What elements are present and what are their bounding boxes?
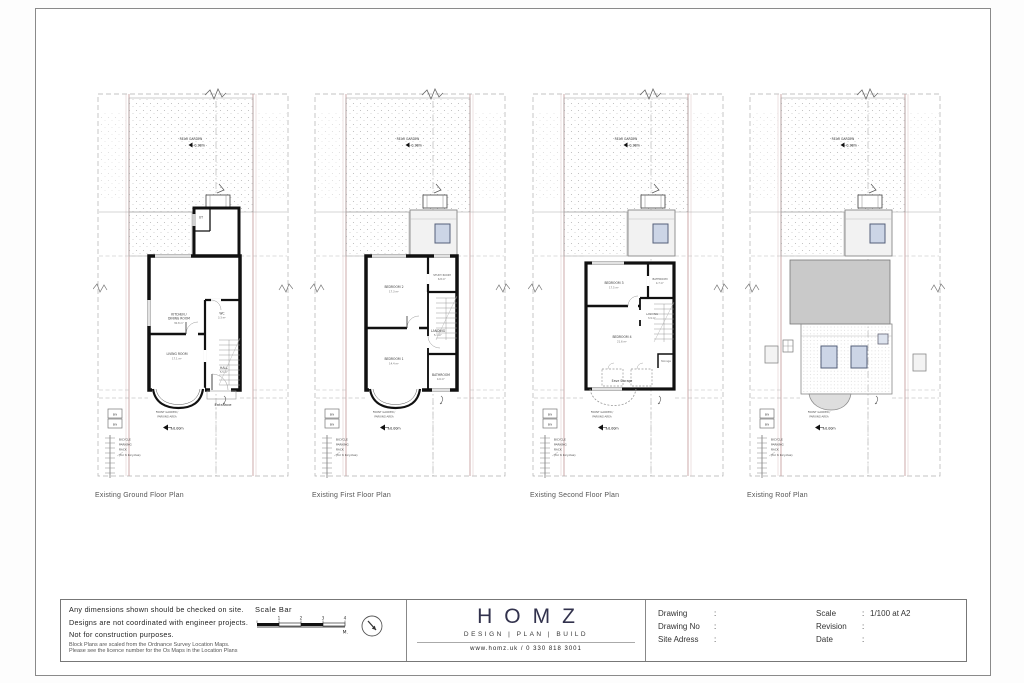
plan-strip-roof: Existing Roof Plan [745,88,945,502]
field-row-date: Date : [816,633,910,646]
room-label-living: LIVING ROOM [166,352,187,356]
field-row-drawing: Drawing : [658,607,722,620]
plan-strip-second-floor: BEDROOM 3 17.5 m² BATHROOM 4.7 m² LANDIN… [528,88,728,502]
field-row-site-address: Site Adress : [658,633,722,646]
svg-text:3: 3 [322,616,325,621]
room-label-bathroom: BATHROOM [652,277,667,281]
scale-bar-section: Scale Bar 1 2 3 4 M. [253,605,363,640]
logo: HOMZ [407,605,645,629]
plan-title-first: Existing First Floor Plan [312,492,510,499]
room-label-wc: WC [219,312,224,316]
neighbor-skylight [765,346,778,363]
svg-text:17.3 m²: 17.3 m² [389,290,399,294]
chimney [206,195,230,208]
room-label-bedroom4: BEDROOM 4 [612,335,631,339]
plan-title-ground: Existing Ground Floor Plan [95,492,293,499]
entrance-label: Entrance [214,402,232,407]
second-floor-plan-drawing: BEDROOM 3 17.5 m² BATHROOM 4.7 m² LANDIN… [528,88,728,488]
room-label-bedroom3: BEDROOM 3 [604,281,623,285]
room-label-landing: LANDING [646,312,658,316]
plan-title-roof: Existing Roof Plan [747,492,945,499]
logo-section: HOMZ DESIGN | PLAN | BUILD www.homz.uk /… [406,600,646,661]
plan-title-second: Existing Second Floor Plan [530,492,728,499]
drawing-info-section: Drawing : Drawing No : Site Adress : Sca… [646,607,960,657]
room-label-storage: Storage [661,359,671,363]
bay-roof-outline [590,389,636,406]
svg-text:4: 4 [344,616,347,621]
field-row-revision: Revision : [816,620,910,633]
note-line: Not for construction purposes. [69,629,248,642]
svg-text:21.6 m²: 21.6 m² [617,340,627,344]
bay-roof [809,394,851,410]
svg-text:5.1 m²: 5.1 m² [434,333,442,337]
north-arrow-icon [359,613,385,639]
svg-text:1: 1 [278,616,281,621]
field-row-drawing-no: Drawing No : [658,620,722,633]
svg-text:3.3 m²: 3.3 m² [218,316,226,320]
fine-print-line: Please see the licence number for the Os… [69,648,248,655]
front-step [207,391,236,399]
room-label-ut: UT [199,216,203,220]
room-label-bedroom2: BEDROOM 2 [384,285,403,289]
scale-bar-label: Scale Bar [255,605,363,614]
room-label-landing: LANDING [431,329,446,333]
roof-surfaces [765,260,926,410]
note-line: Designs are not coordinated with enginee… [69,617,248,630]
svg-text:30.8 m²: 30.8 m² [174,321,184,325]
skylight [821,346,837,368]
svg-text:5.5 m²: 5.5 m² [220,370,228,374]
svg-text:M.: M. [343,630,348,636]
room-label-eave-storage: Eave Storage [612,379,633,383]
svg-text:4.6 m²: 4.6 m² [437,377,445,381]
notes-section: Any dimensions shown should be checked o… [69,604,248,655]
field-row-scale: Scale : 1/100 at A2 [816,607,910,620]
svg-text:14.4 m²: 14.4 m² [389,362,399,366]
svg-text:DINING ROOM: DINING ROOM [168,317,190,321]
scale-bar: 1 2 3 4 M. [253,615,353,635]
first-floor-plan-drawing: BEDROOM 2 17.3 m² STUDY ROOM 6.8 m² LAND… [310,88,510,488]
note-line: Any dimensions shown should be checked o… [69,604,248,617]
room-label-bedroom1: BEDROOM 1 [384,357,403,361]
neighbor-skylight [913,354,926,371]
svg-text:3.9 m²: 3.9 m² [648,316,656,320]
plan-strip-first-floor: BEDROOM 2 17.3 m² STUDY ROOM 6.8 m² LAND… [310,88,510,502]
skylight [851,346,867,368]
svg-text:17.5 m²: 17.5 m² [609,286,619,290]
drawing-sheet-page: { "site": { "rear_garden": "REAR GARDEN"… [0,0,1024,683]
room-label-bathroom: BATHROOM [432,373,450,377]
flat-roof [790,260,890,324]
svg-text:6.8 m²: 6.8 m² [438,277,446,281]
skylight-small [878,334,888,344]
plan-strip-ground-floor: UT KITCHEN / DINING ROOM 30.8 m² WC 3.3 … [93,88,293,502]
svg-text:4.7 m²: 4.7 m² [656,281,664,285]
roof-plan-drawing [745,88,945,488]
title-block: Any dimensions shown should be checked o… [60,599,967,662]
room-label-study: STUDY ROOM [433,273,451,277]
svg-text:17.1 m²: 17.1 m² [172,357,182,361]
logo-tagline: DESIGN | PLAN | BUILD [407,631,645,638]
logo-contact: www.homz.uk / 0 330 818 3001 [417,642,635,652]
room-label-hall: HALL [220,366,228,370]
ground-floor-plan-drawing: UT KITCHEN / DINING ROOM 30.8 m² WC 3.3 … [93,88,293,488]
svg-text:2: 2 [300,616,303,621]
